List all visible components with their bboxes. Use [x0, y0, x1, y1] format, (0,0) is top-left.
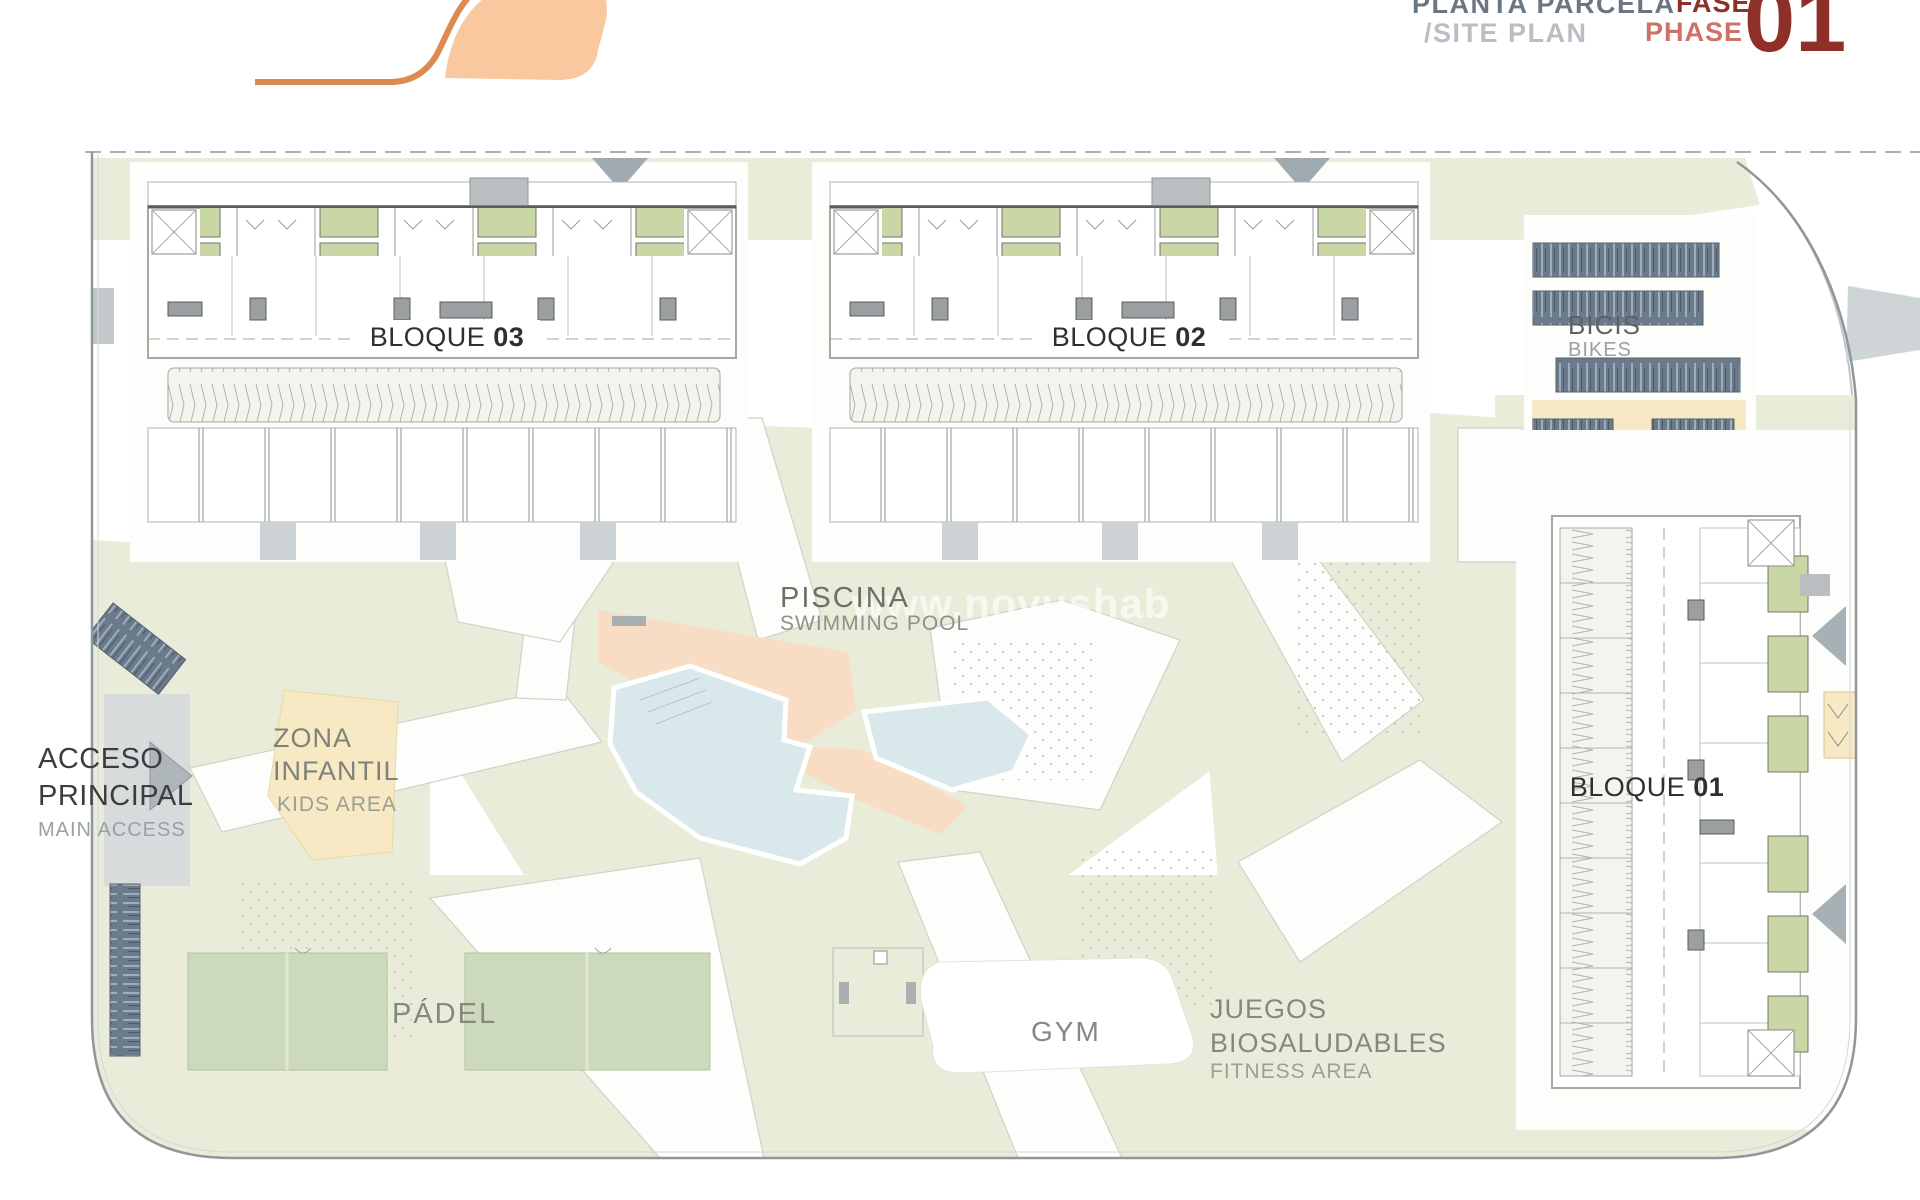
bloque-02-label: BLOQUE 02 [1034, 322, 1224, 353]
bike-rack [1533, 243, 1719, 277]
pool-label-es: PISCINA [780, 583, 910, 613]
terrace-band [168, 368, 720, 422]
fitness-label-line2: BIOSALUDABLES [1210, 1029, 1447, 1057]
kids-label-line2: INFANTIL [273, 757, 400, 785]
bloque-03-label: BLOQUE 03 [352, 322, 542, 353]
site-plan-page: PLANTA PARCELA /SITE PLAN FASE PHASE 01 … [0, 0, 1920, 1200]
gym-label: GYM [1031, 1017, 1101, 1046]
phase-label-en: PHASE [1645, 18, 1743, 46]
brand-logo [255, 0, 607, 82]
kids-label-en: KIDS AREA [277, 794, 397, 816]
access-label-line1: ACCESO [38, 744, 163, 774]
bloque-03-word: BLOQUE [370, 322, 486, 352]
pool-loungers [612, 616, 646, 626]
phase-number: 01 [1744, 0, 1846, 66]
bloque-02-number: 02 [1175, 322, 1206, 352]
bloque-03-number: 03 [493, 322, 524, 352]
boundary-gate [92, 288, 114, 344]
bloque-01-word: BLOQUE [1570, 772, 1686, 802]
padel-label: PÁDEL [392, 999, 497, 1029]
bike-rack [1556, 358, 1740, 392]
access-label-en: MAIN ACCESS [38, 820, 186, 841]
access-label-line2: PRINCIPAL [38, 781, 193, 811]
parking-row [148, 428, 736, 522]
court-sign-icon [874, 951, 887, 964]
bloque-02-word: BLOQUE [1052, 322, 1168, 352]
pool-label-en: SWIMMING POOL [780, 613, 969, 635]
lobby [1800, 574, 1830, 596]
fitness-label-en: FITNESS AREA [1210, 1061, 1373, 1083]
bloque-01-number: 01 [1693, 772, 1724, 802]
bloque-03-building [130, 158, 748, 562]
lobby [470, 178, 528, 208]
bikes-label-es: BICIS [1568, 312, 1641, 339]
pergola-marks [1824, 692, 1856, 758]
bikes-label-en: BIKES [1568, 340, 1632, 361]
kids-label-line1: ZONA [273, 724, 352, 752]
title-en: /SITE PLAN [1424, 19, 1588, 47]
fitness-label-line1: JUEGOS [1210, 995, 1327, 1023]
phase-label-es: FASE [1676, 0, 1751, 17]
carport-strip-lower [110, 884, 140, 1056]
bloque-01-label: BLOQUE 01 [1552, 772, 1742, 803]
title-es: PLANTA PARCELA [1412, 0, 1676, 18]
side-entry-road [1846, 286, 1920, 362]
bloque-02-building [812, 158, 1430, 562]
